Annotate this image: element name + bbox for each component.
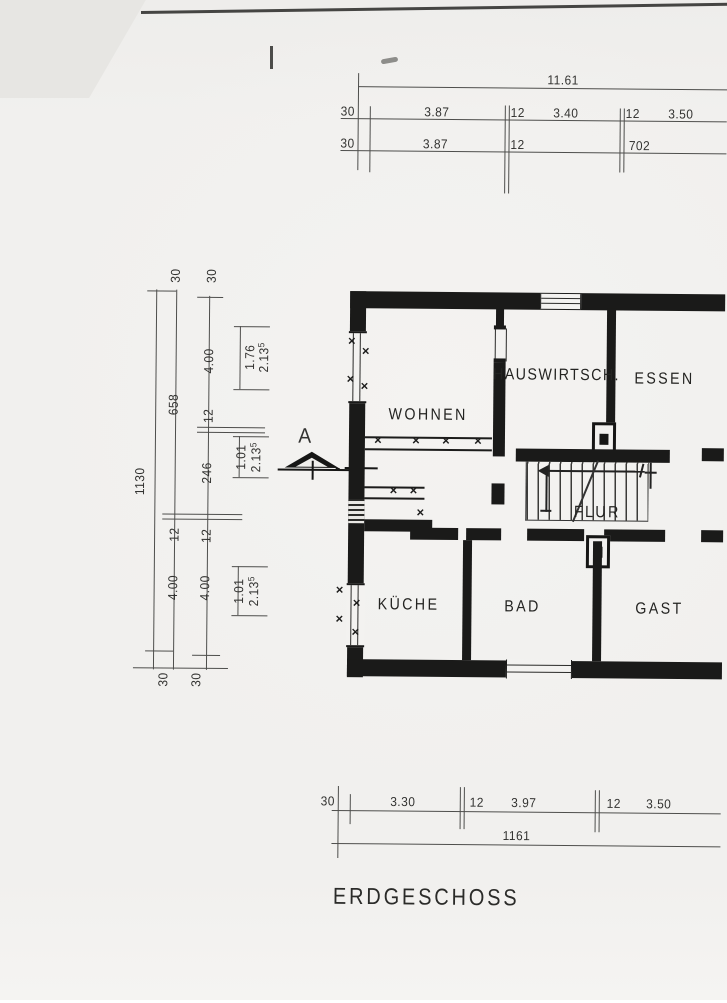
dim-tick bbox=[197, 297, 223, 299]
glazing-x-mark: × bbox=[362, 346, 370, 356]
window-dim-width: 1.01 bbox=[231, 579, 246, 604]
exterior-wall-top bbox=[350, 291, 725, 311]
glazing-x-mark: × bbox=[336, 585, 344, 595]
dim-label: 246 bbox=[199, 462, 214, 483]
dim-tick bbox=[350, 794, 352, 824]
room-label-hauswirtsch: HAUSWIRTSCH. bbox=[493, 365, 620, 384]
glazing-x-mark: × bbox=[353, 598, 361, 608]
dim-label: 3.40 bbox=[553, 105, 578, 120]
section-marker-label: A bbox=[298, 425, 312, 449]
glazed-partition-wohnen bbox=[365, 436, 492, 451]
door-leaf-essen bbox=[650, 463, 652, 489]
window-dim-width: 1.76 bbox=[242, 345, 257, 370]
dim-label: 3.87 bbox=[424, 104, 449, 119]
dim-label: 3.30 bbox=[390, 794, 415, 809]
dim-line bbox=[358, 86, 727, 91]
dim-label: 12 bbox=[470, 795, 484, 810]
dim-label: 3.97 bbox=[511, 795, 536, 810]
room-label-gast: GAST bbox=[635, 599, 683, 618]
dim-tick bbox=[619, 108, 621, 172]
dim-line bbox=[153, 289, 158, 669]
dim-label: 30 bbox=[204, 269, 219, 283]
glazing-x-mark: × bbox=[374, 435, 382, 445]
dim-label: 658 bbox=[166, 394, 181, 415]
glazing-x-mark: × bbox=[410, 486, 418, 496]
dim-line bbox=[173, 290, 178, 670]
flur-wall-segment bbox=[466, 528, 501, 540]
dim-label: 3.50 bbox=[646, 796, 671, 811]
dim-label-overall-left: 1130 bbox=[132, 467, 147, 495]
dim-tick bbox=[599, 790, 601, 832]
flur-wall-segment bbox=[701, 530, 723, 542]
window-dim-height: 2.135 bbox=[246, 576, 261, 606]
glazing-x-mark: × bbox=[336, 614, 344, 624]
dim-label: 12 bbox=[167, 527, 182, 541]
room-label-kueche: KÜCHE bbox=[378, 595, 440, 614]
dim-label: 30 bbox=[155, 672, 170, 686]
glazing-x-mark: × bbox=[442, 436, 450, 446]
dim-tick bbox=[192, 655, 220, 657]
glazing-x-mark: × bbox=[348, 336, 356, 346]
dim-label: 4.00 bbox=[201, 348, 216, 373]
dim-label: 30 bbox=[188, 673, 203, 687]
dim-line bbox=[331, 843, 720, 848]
wall-kueche-bad bbox=[462, 540, 472, 660]
room-label-wohnen: WOHNEN bbox=[389, 405, 468, 424]
glazing-x-mark: × bbox=[347, 374, 355, 384]
glazing-x-mark: × bbox=[390, 485, 398, 495]
room-label-flur: FLUR bbox=[574, 503, 621, 522]
door-wohnen-hauswirtsch bbox=[495, 328, 507, 361]
scanned-floorplan-sheet: 11.61 30 3.87 12 3.40 12 3.50 30 3.87 12… bbox=[0, 0, 727, 1000]
dim-tick bbox=[133, 667, 228, 669]
dim-tick bbox=[357, 73, 359, 170]
dim-label: 12 bbox=[626, 106, 640, 121]
wall-hatch-block bbox=[348, 499, 364, 523]
dim-label: 3.50 bbox=[668, 106, 693, 121]
glazing-x-mark: × bbox=[474, 436, 482, 446]
flur-wall-segment bbox=[604, 529, 665, 542]
floorplan-drawing: 11.61 30 3.87 12 3.40 12 3.50 30 3.87 12… bbox=[0, 0, 727, 1003]
room-label-bad: BAD bbox=[504, 597, 541, 616]
dim-label: 30 bbox=[341, 104, 355, 119]
section-line-tick bbox=[312, 461, 314, 480]
dim-label: 12 bbox=[201, 409, 216, 423]
flur-wall-segment bbox=[527, 529, 584, 541]
dim-tick bbox=[337, 786, 339, 858]
dim-label: 30 bbox=[340, 136, 354, 151]
window-top-wall bbox=[540, 294, 581, 309]
glazing-x-mark: × bbox=[412, 436, 420, 446]
dim-tick bbox=[504, 105, 506, 193]
dim-tick bbox=[233, 389, 269, 391]
dim-tick bbox=[231, 615, 267, 617]
window-dim-height: 2.135 bbox=[248, 442, 263, 472]
wall-bad-gast bbox=[592, 541, 602, 661]
wall-pier bbox=[491, 483, 504, 504]
dim-tick bbox=[460, 787, 462, 829]
dim-tick bbox=[145, 650, 173, 652]
dim-label: 12 bbox=[510, 137, 524, 152]
dim-tick bbox=[147, 290, 176, 292]
wall-fragment-right bbox=[702, 448, 724, 461]
dim-tick bbox=[369, 106, 371, 172]
flur-wall-segment bbox=[410, 528, 458, 540]
dim-tick bbox=[595, 790, 597, 832]
wall-above-stairs bbox=[516, 449, 670, 463]
dim-label: 702 bbox=[629, 138, 650, 153]
drawing-title: ERDGESCHOSS bbox=[333, 884, 520, 912]
dim-label: 30 bbox=[168, 268, 183, 282]
stair-arrow-foot bbox=[540, 510, 551, 512]
room-label-essen: ESSEN bbox=[634, 369, 694, 388]
dim-line bbox=[340, 150, 726, 155]
glazing-x-mark: × bbox=[361, 381, 369, 391]
dim-tick bbox=[233, 477, 269, 479]
window-bottom-wall bbox=[506, 659, 572, 679]
dim-label: 12 bbox=[511, 105, 525, 120]
dim-label: 4.00 bbox=[197, 575, 212, 600]
dim-label-overall-bottom: 1161 bbox=[503, 828, 531, 843]
glazing-x-mark: × bbox=[416, 508, 424, 518]
dim-label-overall-top: 11.61 bbox=[547, 72, 578, 87]
window-dim-width: 1.01 bbox=[233, 445, 248, 470]
section-line-dot bbox=[336, 468, 340, 471]
dim-tick bbox=[464, 787, 466, 829]
glazing-x-mark: × bbox=[351, 627, 359, 637]
window-dim-height: 2.135 bbox=[256, 342, 271, 372]
door-jamb bbox=[494, 325, 506, 329]
dim-tick bbox=[239, 326, 241, 389]
dim-label: 3.87 bbox=[423, 136, 448, 151]
dim-label: 12 bbox=[199, 529, 214, 543]
dim-label: 30 bbox=[321, 793, 335, 808]
dim-label: 12 bbox=[607, 796, 621, 811]
dim-label: 4.00 bbox=[165, 575, 180, 600]
